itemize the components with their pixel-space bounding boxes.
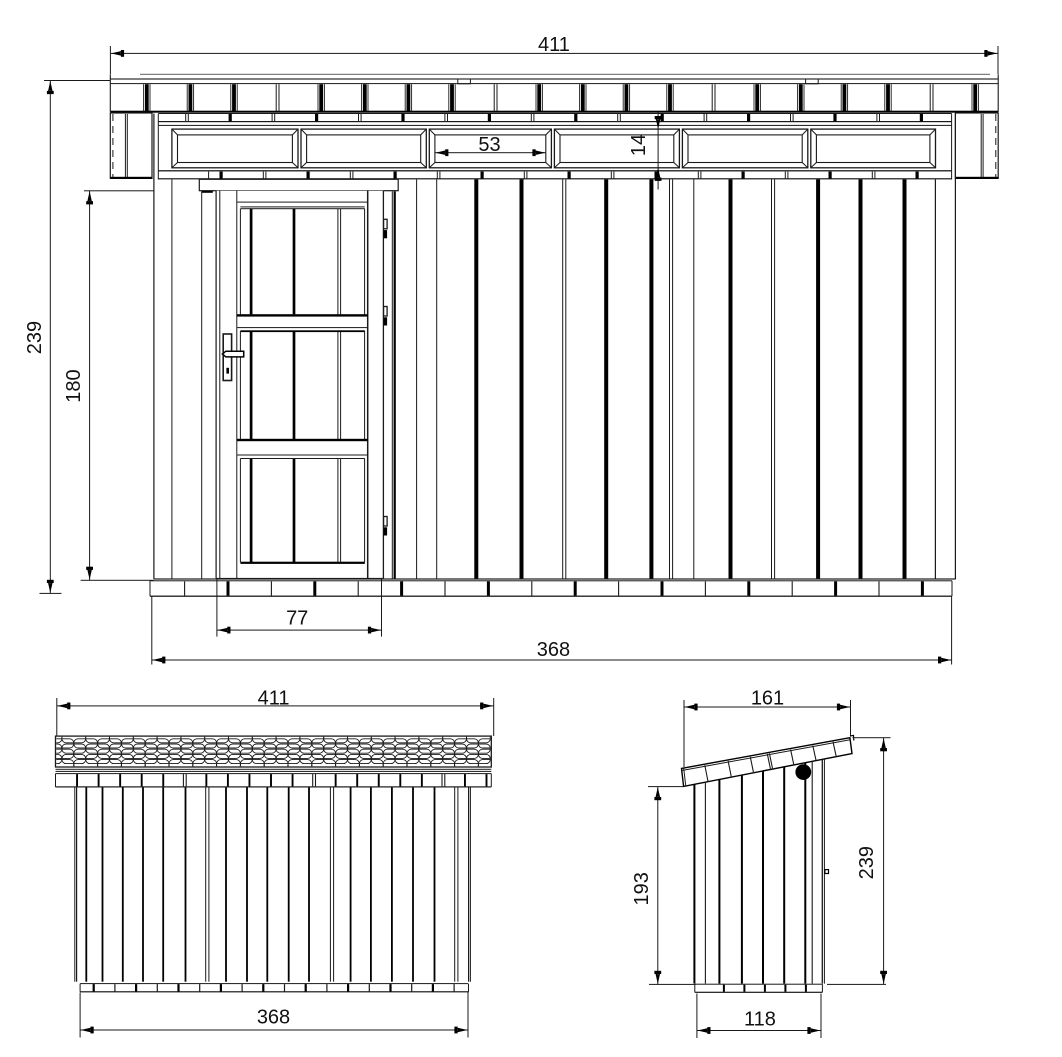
svg-text:180: 180 [63, 369, 85, 402]
svg-text:53: 53 [478, 134, 500, 156]
svg-text:411: 411 [258, 688, 290, 710]
svg-text:14: 14 [628, 134, 650, 156]
svg-text:239: 239 [24, 321, 46, 354]
svg-text:239: 239 [856, 846, 878, 879]
svg-text:77: 77 [286, 607, 308, 629]
svg-text:118: 118 [744, 1009, 776, 1031]
svg-text:368: 368 [257, 1007, 290, 1029]
svg-text:368: 368 [537, 639, 570, 661]
svg-text:411: 411 [538, 34, 570, 56]
svg-text:193: 193 [631, 872, 653, 905]
svg-text:161: 161 [751, 688, 784, 710]
